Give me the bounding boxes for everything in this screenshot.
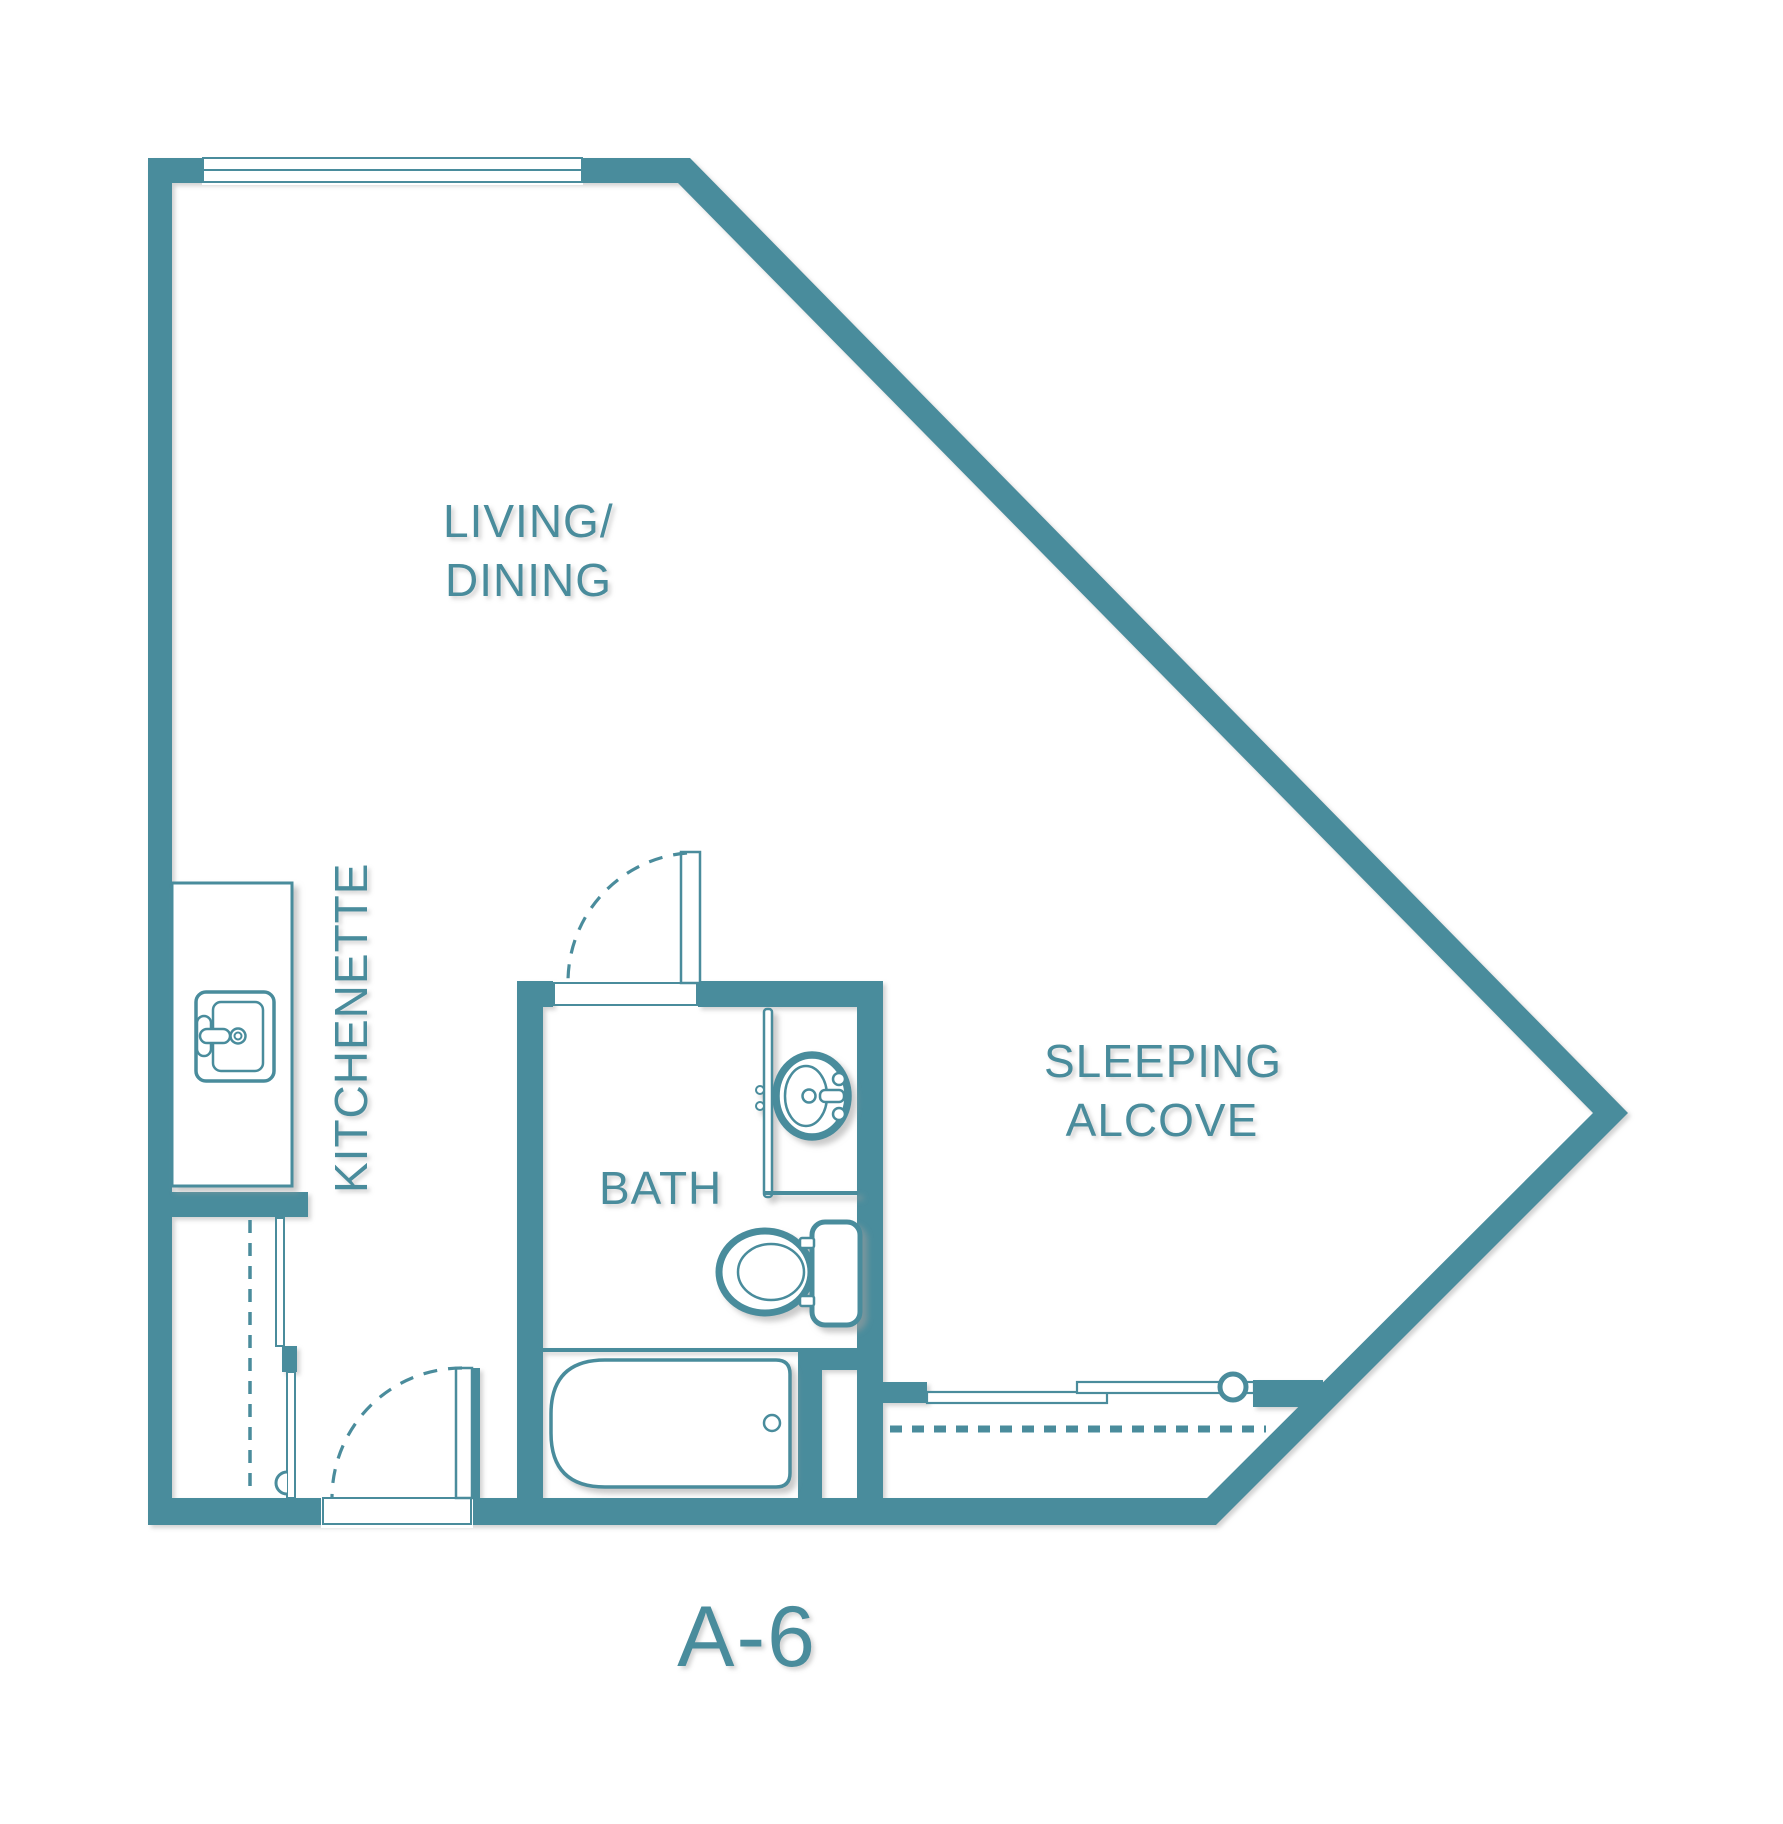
bathroom-faucet-handle-bottom bbox=[833, 1108, 845, 1120]
entry-door-swing-arc bbox=[332, 1368, 462, 1498]
bathtub-icon bbox=[551, 1360, 790, 1487]
kitchen-counter bbox=[172, 883, 292, 1186]
vanity-bottom-edge bbox=[764, 1191, 858, 1195]
bath-sill bbox=[554, 983, 697, 1005]
exterior-walls bbox=[148, 158, 1628, 1525]
plan-name-label: A-6 bbox=[677, 1589, 817, 1685]
closet-door-overlap-block bbox=[282, 1346, 297, 1372]
toilet-icon bbox=[719, 1222, 860, 1325]
living-dining-label-line1: LIVING/ bbox=[443, 495, 614, 547]
bath-threshold bbox=[553, 982, 698, 1006]
entry-door-leaf bbox=[456, 1368, 472, 1498]
floor-plan-svg: LIVING/ DINING KITCHENETTE BATH SLEEPING… bbox=[0, 0, 1783, 1824]
sleeping-closet-header bbox=[880, 1382, 927, 1403]
vanity-knob-top bbox=[756, 1086, 764, 1094]
entry-sill bbox=[323, 1498, 471, 1524]
tub-side-wall bbox=[798, 1370, 822, 1498]
bath-left-wall bbox=[517, 1007, 543, 1498]
kitchenette-stub-wall bbox=[148, 1192, 308, 1217]
sleeping-alcove-label-line1: SLEEPING bbox=[1044, 1035, 1282, 1087]
bathroom-faucet-handle-top bbox=[833, 1073, 845, 1085]
closet-door-panel-top bbox=[276, 1218, 284, 1346]
bathroom-sink-drain bbox=[803, 1090, 816, 1103]
vanity-edge bbox=[764, 1009, 772, 1197]
tub-deck-edge bbox=[543, 1348, 798, 1352]
toilet-hinge-top bbox=[800, 1238, 814, 1248]
living-dining-label-line2: DINING bbox=[445, 554, 612, 606]
closet-door-panel-bottom bbox=[287, 1372, 295, 1498]
bathtub-drain bbox=[764, 1415, 780, 1431]
bath-door bbox=[568, 852, 700, 983]
sleeping-closet bbox=[890, 1374, 1266, 1429]
entry-threshold bbox=[321, 1495, 473, 1528]
bath-label: BATH bbox=[599, 1162, 722, 1214]
bath-top-wall-left bbox=[517, 981, 553, 1007]
floor-plan: LIVING/ DINING KITCHENETTE BATH SLEEPING… bbox=[0, 0, 1783, 1824]
bathroom-faucet-spout bbox=[820, 1090, 844, 1102]
vanity bbox=[756, 1009, 858, 1197]
bath-top-wall-right bbox=[698, 981, 883, 1007]
closet-door-knob bbox=[276, 1472, 287, 1494]
sleeping-closet-jamb bbox=[1253, 1380, 1323, 1407]
vanity-knob-bottom bbox=[756, 1102, 764, 1110]
bath-bottom-stub-wall bbox=[798, 1348, 883, 1370]
toilet-bowl-inner bbox=[738, 1244, 804, 1300]
kitchen-sink-drain-hole bbox=[235, 1033, 242, 1040]
window bbox=[202, 155, 583, 185]
sleeping-alcove-label-line2: ALCOVE bbox=[1066, 1094, 1259, 1146]
kitchenette-label: KITCHENETTE bbox=[325, 863, 377, 1193]
sleeping-closet-knob bbox=[1220, 1374, 1246, 1400]
bath-door-leaf bbox=[681, 852, 700, 983]
walls bbox=[148, 158, 1628, 1525]
kitchen-faucet-spout bbox=[200, 1029, 230, 1043]
bathtub-outline bbox=[551, 1360, 790, 1487]
entry-door bbox=[332, 1368, 472, 1498]
toilet-tank bbox=[812, 1222, 860, 1325]
bath-door-swing-arc bbox=[568, 853, 687, 982]
fixtures bbox=[172, 883, 860, 1487]
toilet-hinge-bottom bbox=[800, 1296, 814, 1306]
